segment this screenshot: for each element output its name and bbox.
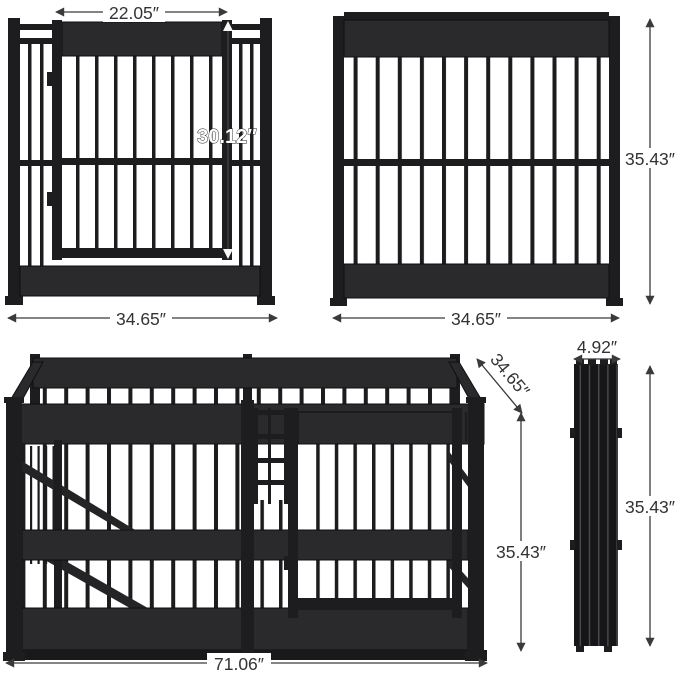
assembled-crate-view — [3, 354, 487, 661]
crate-door-hinge — [284, 458, 290, 472]
folded-hinge-bump — [617, 540, 622, 550]
panel-foot — [606, 298, 623, 306]
side-panel-view — [330, 12, 623, 306]
folded-hinge-bump — [617, 428, 622, 438]
side-panel-bars — [348, 57, 605, 287]
panel-foot — [257, 296, 275, 305]
diagram-canvas: 22.05″ 30.12″ 34.65″ 35.43″ 34.65″ 71.06… — [0, 0, 679, 677]
back-wall-top-band — [33, 358, 457, 388]
door-bottom-rail — [62, 248, 222, 258]
product-dimension-diagram: 22.05″ 30.12″ 34.65″ 35.43″ 34.65″ 71.06… — [0, 0, 679, 677]
folded-height-label: 35.43″ — [625, 497, 675, 517]
folded-stack-seams — [574, 364, 618, 646]
door-bars — [66, 56, 218, 250]
panel-foot — [5, 296, 23, 305]
side-panel-width-label: 34.65″ — [451, 309, 501, 329]
side-panel-header-band — [344, 20, 609, 57]
crate-depth-label: 34.65″ — [486, 349, 533, 400]
crate-door-left-stile — [288, 408, 298, 618]
crate-door-right-stile — [452, 408, 462, 618]
crate-door-header — [298, 412, 454, 444]
folded-foot — [604, 646, 612, 652]
crate-height-label: 35.43″ — [496, 542, 546, 562]
side-panel-bottom-band — [344, 264, 609, 298]
folded-panels-view — [570, 359, 622, 652]
folded-thickness-label: 4.92″ — [577, 337, 617, 357]
folded-foot — [576, 646, 584, 652]
door-left-stile — [52, 20, 62, 260]
crate-door-hinge — [284, 556, 290, 570]
door-hinge — [47, 72, 54, 86]
side-panel-mid-rail — [344, 159, 609, 166]
door-width-label: 22.05″ — [109, 3, 159, 23]
crate-door-bottom-rail — [298, 598, 454, 610]
front-panel-width-label: 34.65″ — [116, 309, 166, 329]
door-hinge — [47, 192, 54, 206]
crate-length-label: 71.06″ — [214, 654, 264, 674]
front-panel-bottom-band — [20, 266, 260, 296]
door-header-panel — [62, 22, 222, 56]
folded-hinge-bump — [570, 428, 575, 438]
door-mid-rail — [62, 158, 222, 165]
side-panel-height-label: 35.43″ — [625, 149, 675, 169]
panel-foot — [330, 298, 347, 306]
door-height-label: 30.12″ — [197, 126, 257, 148]
side-panel-top-rail — [344, 12, 609, 20]
crate-door-bars — [302, 444, 450, 600]
folded-hinge-bump — [570, 540, 575, 550]
front-panel-view — [5, 18, 275, 305]
